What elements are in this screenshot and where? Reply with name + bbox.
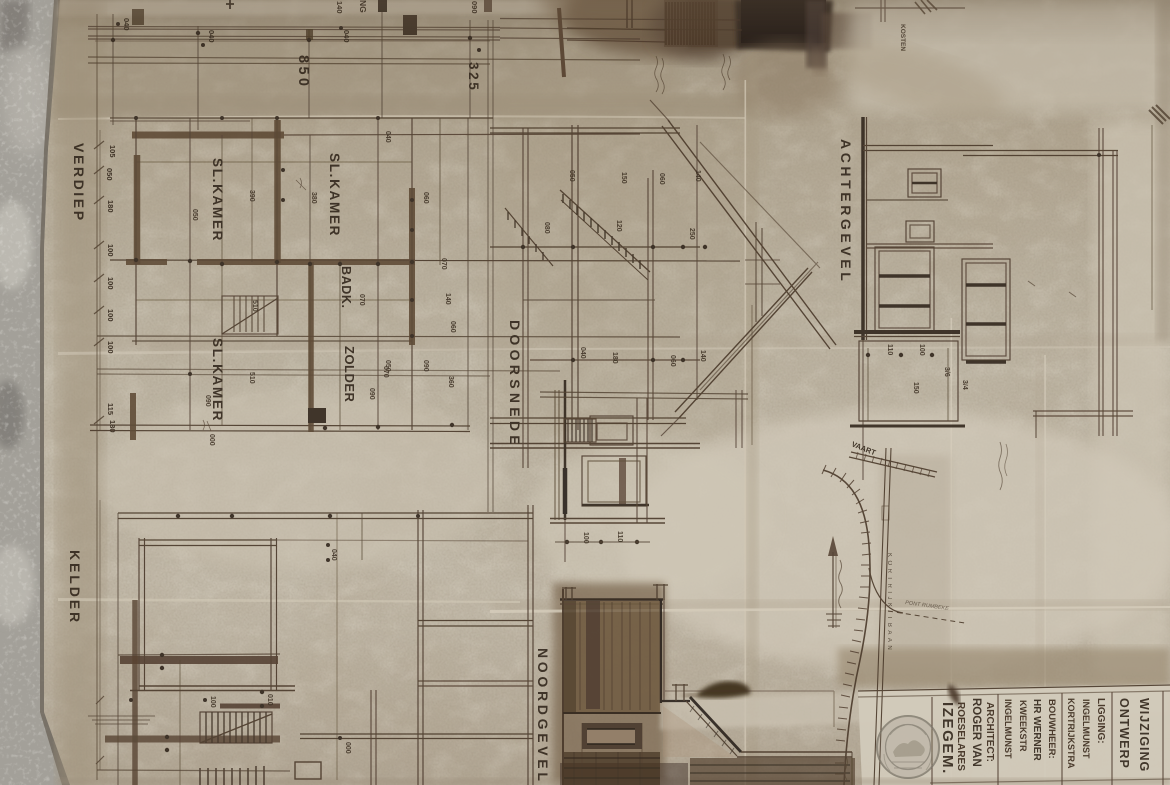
svg-text:110: 110 bbox=[616, 531, 623, 542]
svg-text:150: 150 bbox=[620, 172, 627, 184]
svg-text:HR WERNER: HR WERNER bbox=[1031, 699, 1042, 761]
svg-text:IZEGEM.: IZEGEM. bbox=[939, 702, 956, 775]
svg-text:110: 110 bbox=[886, 344, 893, 355]
svg-text:3/6: 3/6 bbox=[943, 367, 950, 377]
svg-text:BOUWHEER:: BOUWHEER: bbox=[1046, 699, 1057, 759]
svg-text:100: 100 bbox=[106, 244, 115, 257]
svg-text:040: 040 bbox=[579, 347, 586, 359]
svg-text:050: 050 bbox=[191, 209, 198, 221]
svg-text:070: 070 bbox=[440, 258, 447, 270]
svg-text:3/4: 3/4 bbox=[961, 380, 968, 390]
svg-text:115: 115 bbox=[106, 403, 115, 415]
svg-text:NOORDGEVEL: NOORDGEVEL bbox=[535, 648, 551, 785]
svg-text:180: 180 bbox=[108, 420, 117, 433]
svg-text:WIJZIGING: WIJZIGING bbox=[1137, 698, 1151, 772]
svg-text:090: 090 bbox=[368, 388, 375, 400]
svg-text:850: 850 bbox=[295, 55, 311, 89]
svg-text:100: 100 bbox=[106, 309, 115, 322]
svg-text:010: 010 bbox=[266, 694, 273, 706]
svg-text:070: 070 bbox=[358, 294, 365, 306]
svg-text:390: 390 bbox=[248, 190, 255, 202]
svg-text:060: 060 bbox=[658, 173, 665, 185]
svg-text:SL.KAMER: SL.KAMER bbox=[327, 153, 342, 237]
svg-text:100: 100 bbox=[582, 532, 589, 544]
svg-text:LIGGING:: LIGGING: bbox=[1095, 698, 1106, 744]
svg-text:ZOLDER: ZOLDER bbox=[342, 346, 357, 403]
svg-text:180: 180 bbox=[611, 352, 618, 364]
svg-text:INGELMUNST: INGELMUNST bbox=[1081, 699, 1091, 759]
svg-text:360: 360 bbox=[447, 376, 454, 388]
svg-text:040: 040 bbox=[384, 131, 391, 143]
svg-text:060: 060 bbox=[449, 321, 456, 333]
svg-text:050: 050 bbox=[568, 170, 575, 182]
svg-text:090: 090 bbox=[204, 395, 211, 407]
svg-text:510: 510 bbox=[251, 300, 258, 312]
svg-text:050: 050 bbox=[105, 168, 114, 181]
svg-text:100: 100 bbox=[106, 341, 115, 354]
svg-text:ONTWERP: ONTWERP bbox=[1117, 698, 1131, 769]
svg-text:ARCHITECT:: ARCHITECT: bbox=[984, 702, 995, 762]
svg-text:DOORSNEDE: DOORSNEDE bbox=[507, 320, 523, 449]
svg-text:140: 140 bbox=[444, 293, 451, 305]
svg-text:000: 000 bbox=[344, 742, 351, 754]
svg-text:100: 100 bbox=[918, 344, 925, 356]
svg-text:INGELMUNST: INGELMUNST bbox=[1003, 699, 1013, 759]
svg-text:510: 510 bbox=[248, 372, 255, 384]
svg-text:ROESELARES: ROESELARES bbox=[955, 702, 966, 771]
svg-text:KWEEKSTR: KWEEKSTR bbox=[1018, 700, 1028, 752]
svg-text:060: 060 bbox=[422, 192, 429, 204]
svg-text:SL.KAMER: SL.KAMER bbox=[210, 338, 225, 422]
svg-text:BADK.: BADK. bbox=[339, 266, 353, 309]
svg-text:150: 150 bbox=[912, 382, 919, 394]
svg-text:105: 105 bbox=[108, 145, 117, 158]
svg-text:VERDIEP: VERDIEP bbox=[71, 143, 87, 223]
svg-text:000: 000 bbox=[208, 434, 215, 446]
svg-text:250: 250 bbox=[688, 228, 695, 240]
svg-text:120: 120 bbox=[615, 220, 622, 232]
svg-text:KELDER: KELDER bbox=[67, 550, 83, 625]
svg-text:140: 140 bbox=[694, 170, 701, 182]
svg-text:090: 090 bbox=[422, 360, 429, 372]
svg-text:050: 050 bbox=[384, 360, 391, 372]
svg-text:380: 380 bbox=[310, 192, 317, 204]
svg-text:140: 140 bbox=[699, 350, 706, 362]
svg-text:KORTRIJKITBAAN: KORTRIJKITBAAN bbox=[886, 553, 892, 653]
svg-text:080: 080 bbox=[543, 222, 550, 234]
svg-text:ROGER VAN: ROGER VAN bbox=[970, 698, 982, 767]
svg-text:100: 100 bbox=[209, 696, 216, 708]
svg-text:ACHTERGEVEL: ACHTERGEVEL bbox=[838, 139, 854, 284]
svg-text:180: 180 bbox=[106, 200, 115, 213]
svg-text:SL.KAMER: SL.KAMER bbox=[210, 158, 225, 242]
svg-text:060: 060 bbox=[669, 355, 676, 367]
svg-text:040: 040 bbox=[330, 549, 337, 561]
svg-text:100: 100 bbox=[106, 277, 115, 290]
svg-text:325: 325 bbox=[466, 62, 481, 92]
svg-text:KORTRIJKSTRA: KORTRIJKSTRA bbox=[1066, 698, 1076, 769]
